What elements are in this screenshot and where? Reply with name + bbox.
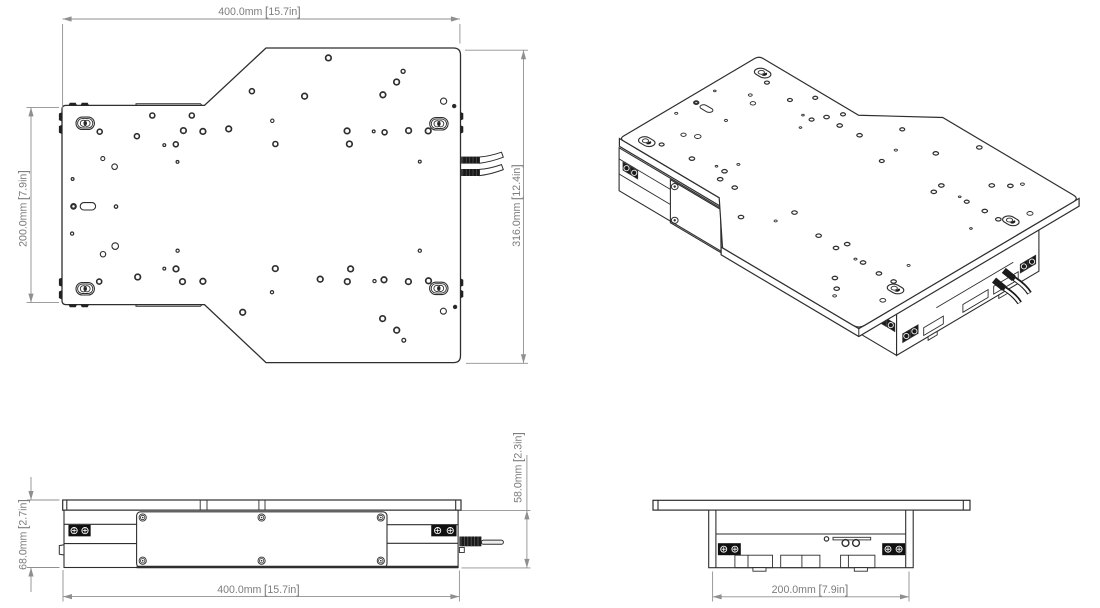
- svg-text:200.0mm [7.9in]: 200.0mm [7.9in]: [772, 583, 849, 597]
- svg-text:400.0mm [15.7in]: 400.0mm [15.7in]: [217, 583, 300, 597]
- svg-text:68.0mm [2.7in]: 68.0mm [2.7in]: [17, 499, 31, 570]
- svg-text:400.0mm [15.7in]: 400.0mm [15.7in]: [218, 5, 301, 19]
- svg-text:316.0mm [12.4in]: 316.0mm [12.4in]: [510, 164, 524, 247]
- svg-text:58.0mm [2.3in]: 58.0mm [2.3in]: [512, 432, 526, 503]
- svg-text:200.0mm [7.9in]: 200.0mm [7.9in]: [17, 170, 31, 247]
